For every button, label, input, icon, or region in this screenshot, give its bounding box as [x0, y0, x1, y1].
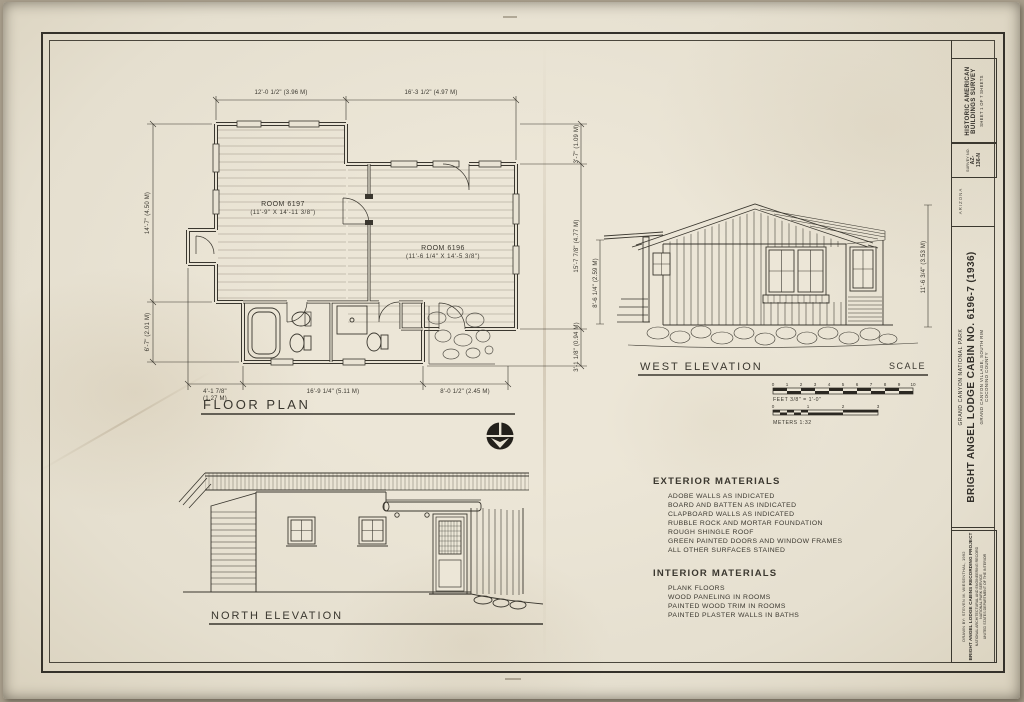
- floor-plan-title: FLOOR PLAN: [203, 397, 310, 412]
- meters-scale-label: METERS 1:32: [773, 420, 812, 426]
- sheet-title-box: GRAND CANYON NATIONAL PARK BRIGHT ANGEL …: [951, 226, 995, 528]
- svg-text:16'-9 1/4" (5.11 M): 16'-9 1/4" (5.11 M): [307, 389, 360, 395]
- feet-scale-label: FEET 3/8" = 1'-0": [773, 397, 821, 403]
- scale-bar: 01 23 45 67 89 10 FEET 3/8" = 1'-0" 01 2…: [763, 380, 938, 428]
- registration-mark: [505, 678, 521, 680]
- interior-material-item: PLANK FLOORS: [668, 584, 893, 593]
- park-name: GRAND CANYON NATIONAL PARK: [958, 329, 964, 426]
- drawn-by: DRAWN BY: STEVEN M. WIESENTHAL, 1992: [961, 551, 966, 641]
- west-dim-right: 11'-6 3/4" (3.53 M): [921, 241, 927, 294]
- svg-text:12'-0 1/2" (3.96 M): 12'-0 1/2" (3.96 M): [254, 90, 307, 96]
- exterior-material-item: CLAPBOARD WALLS AS INDICATED: [668, 510, 893, 519]
- west-elevation-title: WEST ELEVATION: [640, 361, 763, 373]
- svg-text:8'-0 1/2" (2.45 M): 8'-0 1/2" (2.45 M): [440, 389, 490, 395]
- svg-text:(11'-6 1/4" X 14'-5 3/8"): (11'-6 1/4" X 14'-5 3/8"): [406, 254, 480, 260]
- north-window-1: [286, 517, 317, 546]
- interior-material-item: PAINTED WOOD TRIM IN ROOMS: [668, 602, 893, 611]
- svg-text:10: 10: [910, 382, 916, 387]
- org-line-3: UNITED STATES DEPARTMENT OF THE INTERIOR: [983, 554, 987, 639]
- svg-text:(11'-9" X 14'-11 3/8"): (11'-9" X 14'-11 3/8"): [250, 210, 315, 216]
- interior-material-item: PAINTED PLASTER WALLS IN BATHS: [668, 611, 893, 620]
- svg-text:2: 2: [842, 404, 845, 409]
- state-label: ARIZONA: [953, 180, 967, 222]
- entry-door: [429, 514, 471, 594]
- exterior-materials-heading: EXTERIOR MATERIALS: [653, 476, 893, 487]
- scale-feet-numbers: 01 23 45 67 89 10: [772, 382, 916, 387]
- room-6196-label: ROOM 6196: [421, 245, 465, 252]
- svg-text:3: 3: [877, 404, 880, 409]
- north-window-2: [357, 517, 388, 546]
- svg-text:8: 8: [884, 382, 887, 387]
- svg-text:3: 3: [814, 382, 817, 387]
- project-name: BRIGHT ANGEL LODGE CABINS RECORDING PROJ…: [968, 533, 973, 661]
- svg-text:3'-1 1/8" (0.94 M): 3'-1 1/8" (0.94 M): [574, 322, 580, 372]
- interior-materials-heading: INTERIOR MATERIALS: [653, 568, 893, 579]
- svg-text:1: 1: [786, 382, 789, 387]
- floor-plan-drawing: 12'-0 1/2" (3.96 M) 16'-3 1/2" (4.97 M) …: [91, 78, 636, 423]
- feet-bar: [773, 388, 913, 394]
- north-elevation-drawing: NORTH ELEVATION: [171, 442, 561, 632]
- svg-text:9: 9: [898, 382, 901, 387]
- svg-text:6'-7" (2.01 M): 6'-7" (2.01 M): [145, 313, 151, 352]
- right-clapboard: [848, 297, 882, 321]
- svg-text:14'-7" (4.50 M): 14'-7" (4.50 M): [145, 192, 151, 234]
- svg-text:7: 7: [870, 382, 873, 387]
- materials-notes: EXTERIOR MATERIALS ADOBE WALLS AS INDICA…: [653, 476, 893, 620]
- svg-text:15'-7 7/8" (4.77 M): 15'-7 7/8" (4.77 M): [574, 219, 580, 272]
- north-roof: [179, 473, 529, 508]
- exterior-material-item: RUBBLE ROCK AND MORTAR FOUNDATION: [668, 519, 893, 528]
- registration-mark: [503, 16, 517, 18]
- habs-line2: BUILDINGS SURVEY: [971, 68, 977, 134]
- svg-text:4: 4: [828, 382, 831, 387]
- scale-label: SCALE: [889, 361, 926, 371]
- sheet-title: BRIGHT ANGEL LODGE CABIN NO. 6196-7 (193…: [966, 251, 977, 502]
- exterior-material-item: ADOBE WALLS AS INDICATED: [668, 492, 893, 501]
- svg-text:16'-3 1/2" (4.97 M): 16'-3 1/2" (4.97 M): [404, 90, 457, 96]
- svg-text:4'-1 7/8": 4'-1 7/8": [203, 389, 227, 395]
- plank-floor-hatch: [218, 126, 514, 327]
- scale-meters-numbers: 01 23: [772, 404, 880, 409]
- survey-no-value-2: 136-N: [976, 153, 982, 167]
- svg-text:6: 6: [856, 382, 859, 387]
- location-line-2: COCONINO COUNTY: [984, 352, 989, 402]
- stone-foundation: [628, 326, 918, 348]
- right-window: [850, 247, 876, 291]
- ground-line: [183, 592, 543, 609]
- svg-text:2: 2: [800, 382, 803, 387]
- credits-box: DRAWN BY: STEVEN M. WIESENTHAL, 1992 BRI…: [951, 530, 997, 663]
- north-elevation-title: NORTH ELEVATION: [211, 610, 343, 622]
- habs-box: HISTORIC AMERICAN BUILDINGS SURVEY SHEET…: [951, 58, 997, 144]
- svg-text:0: 0: [772, 382, 775, 387]
- meters-bar: [773, 410, 878, 415]
- svg-text:5: 5: [842, 382, 845, 387]
- survey-number-box: SURVEY NO. AZ- 136-N: [951, 142, 997, 178]
- svg-text:0: 0: [772, 404, 775, 409]
- right-board-batten: [471, 508, 523, 595]
- exterior-material-item: ROUGH SHINGLE ROOF: [668, 528, 893, 537]
- drawing-sheet: 12'-0 1/2" (3.96 M) 16'-3 1/2" (4.97 M) …: [3, 2, 1020, 699]
- gable-roof: [632, 204, 878, 250]
- west-elevation-drawing: 11'-6 3/4" (3.53 M) 8'-6 1/4" (2.59 M) W…: [588, 187, 958, 397]
- svg-text:3'-7" (1.09 M): 3'-7" (1.09 M): [574, 125, 580, 164]
- exterior-material-item: ALL OTHER SURFACES STAINED: [668, 546, 893, 555]
- svg-text:1: 1: [807, 404, 810, 409]
- exterior-material-item: GREEN PAINTED DOORS AND WINDOW FRAMES: [668, 537, 893, 546]
- exterior-material-item: BOARD AND BATTEN AS INDICATED: [668, 501, 893, 510]
- room-6197-label: ROOM 6197: [261, 201, 305, 208]
- interior-material-item: WOOD PANELING IN ROOMS: [668, 593, 893, 602]
- habs-sheet-count: SHEET 1 OF 7 SHEETS: [979, 75, 984, 126]
- west-dim-left: 8'-6 1/4" (2.59 M): [593, 258, 599, 308]
- center-double-window: [763, 247, 829, 303]
- left-clapboard-block: [211, 493, 256, 592]
- bath-fixtures: [248, 306, 388, 358]
